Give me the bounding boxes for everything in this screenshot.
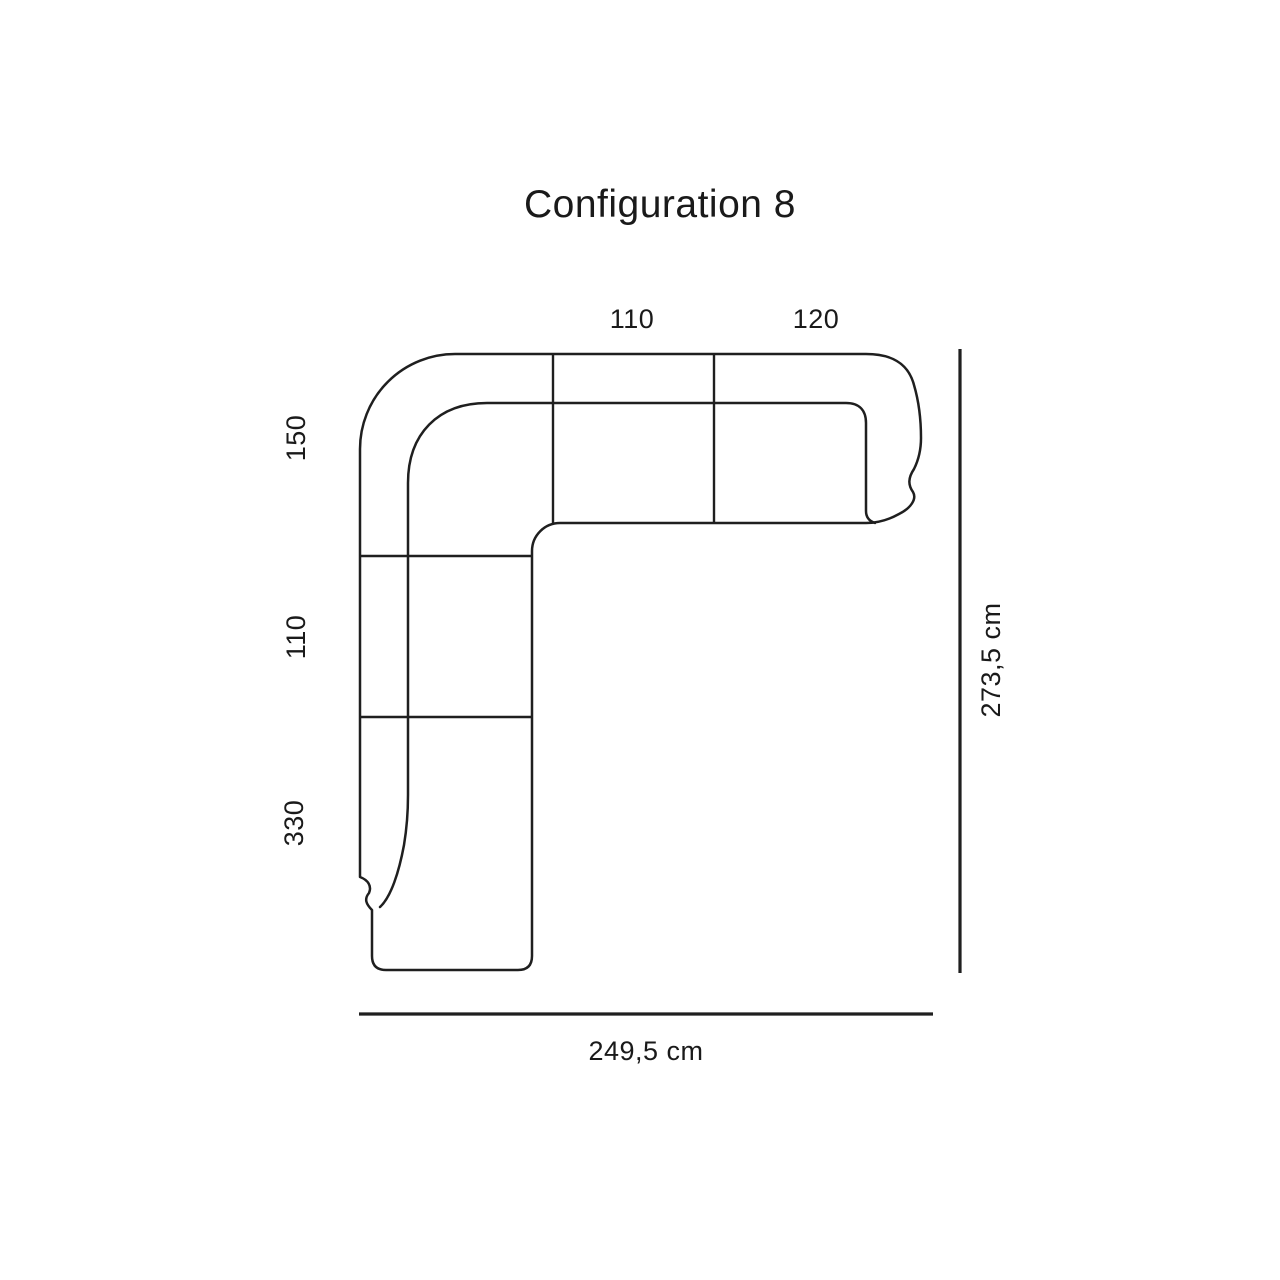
page: Configuration 8 110 120 150 110 330 249,… [0,0,1280,1280]
sofa-backrest-line [380,403,875,907]
dimension-label-total-width: 249,5 cm [588,1036,703,1066]
dimension-label-top-1: 110 [610,304,655,334]
sofa-outer-outline [360,354,921,970]
dimension-label-left-3: 330 [279,800,309,847]
dimension-label-top-2: 120 [793,304,840,334]
dimension-label-total-depth: 273,5 cm [976,602,1006,717]
sofa-drawing [359,349,960,1014]
sofa-configuration-diagram: Configuration 8 110 120 150 110 330 249,… [0,0,1280,1280]
dimension-label-left-2: 110 [281,615,311,660]
diagram-title: Configuration 8 [524,183,796,226]
dimension-label-left-1: 150 [281,415,311,462]
